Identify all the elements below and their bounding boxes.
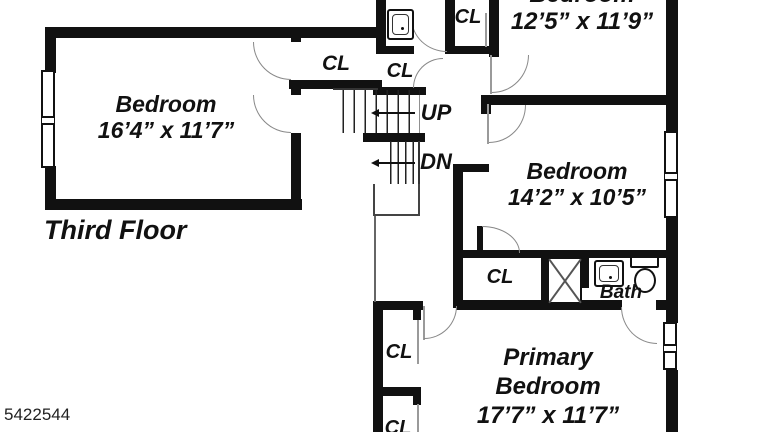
wall-segment xyxy=(376,0,386,50)
mls-number: 5422544 xyxy=(4,405,70,425)
shower-icon xyxy=(547,257,582,304)
bifold-door-line xyxy=(417,320,419,364)
stairwell-thin-wall xyxy=(374,216,376,302)
room-name: Bedroom xyxy=(482,0,682,8)
door-arc xyxy=(489,105,526,143)
wall-segment xyxy=(45,27,380,38)
room-dims: 16’4” x 11’7” xyxy=(60,117,272,143)
closet-label: CL xyxy=(484,266,516,289)
floor-title: Third Floor xyxy=(44,215,244,246)
sink-basin xyxy=(392,14,409,35)
wall-segment xyxy=(666,370,678,432)
door-arc xyxy=(413,58,443,88)
window xyxy=(663,322,677,370)
down-arrow-line xyxy=(379,162,415,164)
wall-segment xyxy=(45,27,56,73)
down-arrow-head xyxy=(371,159,379,167)
closet-label: CL xyxy=(383,341,415,364)
wall-segment xyxy=(291,133,301,210)
room-label-bedroom-mid-right: Bedroom 14’2” x 10’5” xyxy=(471,158,683,210)
window-mullion xyxy=(664,344,676,353)
closet-label: CL xyxy=(450,6,486,29)
sink-icon xyxy=(387,9,414,40)
sink-drain xyxy=(609,276,612,279)
room-name: Bedroom xyxy=(60,91,272,117)
closet-label: CL xyxy=(382,417,414,432)
up-arrow-head xyxy=(371,109,379,117)
wall-segment xyxy=(45,199,302,210)
stairs-down-label: DN xyxy=(418,149,454,175)
room-name: Bedroom xyxy=(471,158,683,184)
room-label-primary-bedroom: Primary Bedroom 17’7” x 11’7” xyxy=(448,343,648,430)
bath-label: Bath xyxy=(594,282,648,304)
room-name: Bedroom xyxy=(448,372,648,401)
bifold-door-line xyxy=(417,404,419,432)
wall-segment xyxy=(453,164,463,308)
closet-label: CL xyxy=(316,52,356,76)
wall-segment xyxy=(666,218,678,323)
room-dims: 14’2” x 10’5” xyxy=(471,184,683,210)
door-arc xyxy=(482,226,520,253)
door-arc xyxy=(253,42,291,80)
up-arrow-line xyxy=(379,112,415,114)
room-label-bedroom-top-right: Bedroom 12’5” x 11’9” xyxy=(482,0,682,35)
wall-segment xyxy=(413,308,421,320)
stair-landing xyxy=(373,184,420,216)
wall-segment xyxy=(581,250,589,288)
sink-basin xyxy=(599,265,619,282)
toilet-tank-icon xyxy=(630,256,659,268)
floor-plan: Bedroom 16’4” x 11’7” Bedroom 12’5” x 11… xyxy=(0,0,768,432)
door-arc xyxy=(424,306,457,339)
door-arc xyxy=(492,55,529,93)
stairs-up-label: UP xyxy=(418,100,454,126)
room-label-bedroom-left: Bedroom 16’4” x 11’7” xyxy=(60,91,272,143)
door-arc xyxy=(411,18,447,52)
window-mullion xyxy=(42,116,54,125)
wall-segment xyxy=(481,95,678,105)
window xyxy=(41,70,55,168)
door-arc xyxy=(621,307,657,344)
room-name: Primary xyxy=(448,343,648,372)
closet-label: CL xyxy=(384,60,416,83)
room-dims: 17’7” x 11’7” xyxy=(448,401,648,430)
sink-drain xyxy=(401,27,404,30)
wall-segment xyxy=(291,27,301,42)
wall-segment xyxy=(376,46,414,54)
room-dims: 12’5” x 11’9” xyxy=(482,8,682,35)
wall-segment xyxy=(373,301,383,432)
